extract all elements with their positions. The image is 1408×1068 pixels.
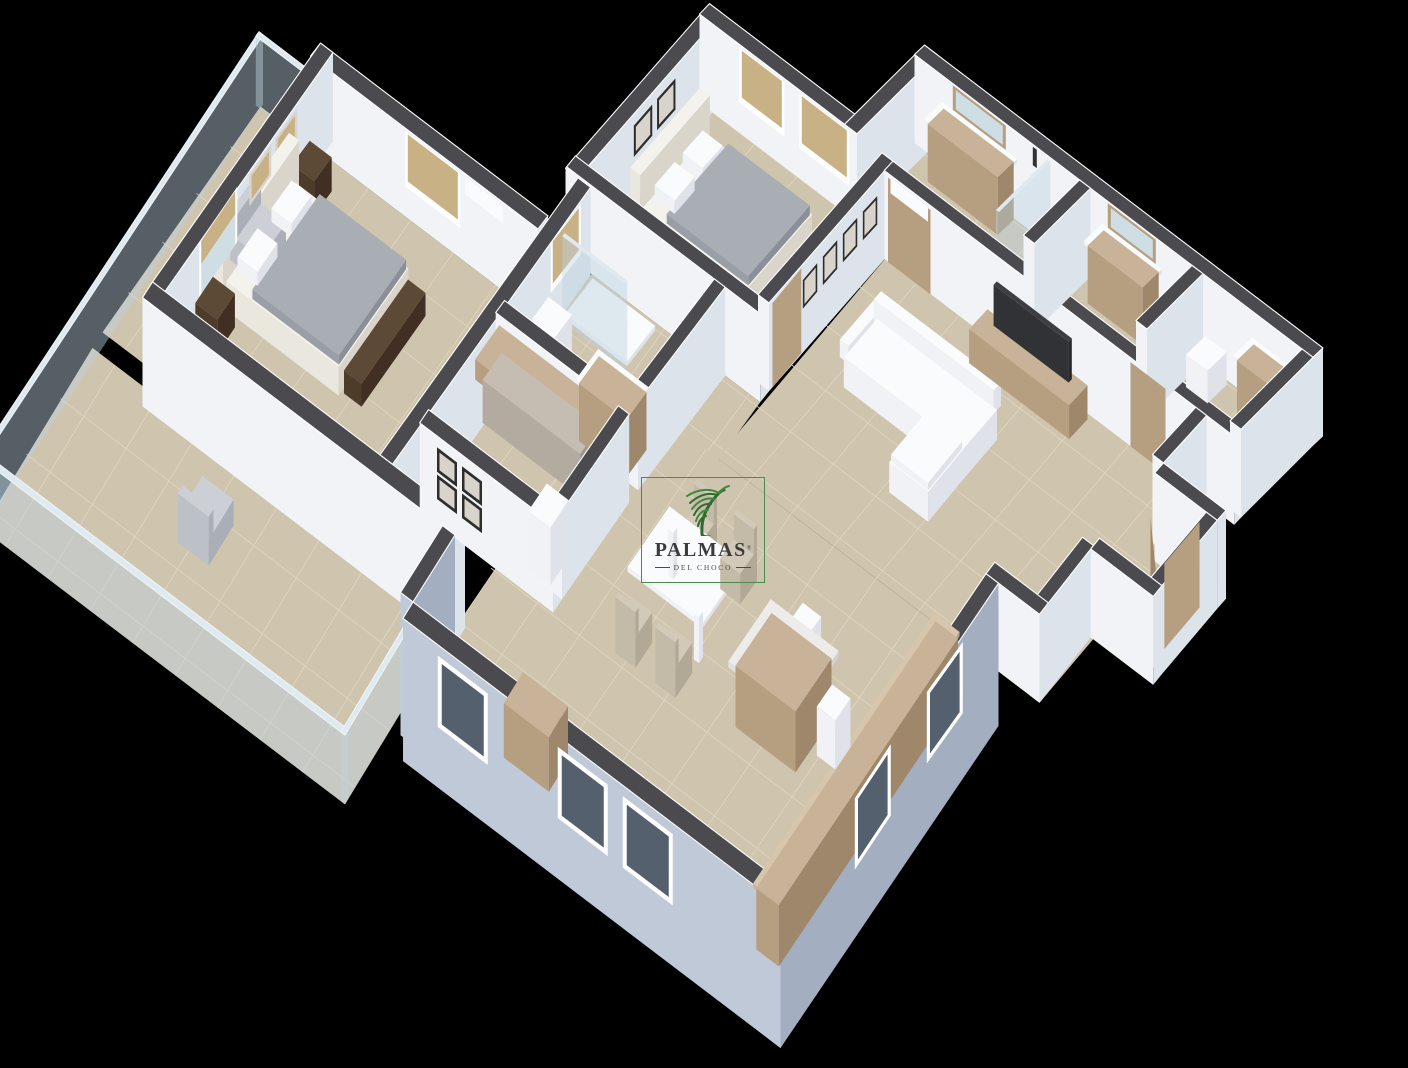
subtitle-row: DEL CHOCO [655, 563, 752, 572]
wall-kitchen-step-east [1040, 603, 1049, 703]
shower-head [1033, 147, 1037, 168]
railing-east-south [341, 732, 345, 804]
dining-chair-back-east [635, 607, 638, 637]
palm-leaf-icon [672, 480, 736, 536]
dining-chair-back-east [675, 638, 678, 668]
dining-table-leg-south [694, 613, 699, 663]
brand-text-row: PALMAS® [655, 540, 752, 560]
wall-strip-north-east [1313, 348, 1323, 446]
wall-entry-south-east [1153, 586, 1162, 685]
registered-mark: ® [747, 546, 752, 552]
subtitle-dash-right [736, 567, 751, 568]
subtitle-dash-left [655, 567, 670, 568]
television-east [1069, 338, 1072, 382]
floor-plan-scene: PALMAS® DEL CHOCO [0, 0, 1408, 1068]
wall-bedroom2-east-south [758, 295, 769, 392]
dining-table-leg [694, 607, 703, 663]
wall-strip-east-south [1230, 421, 1241, 518]
bath1-shower-glass-east [625, 281, 627, 370]
subtitle-text: DEL CHOCO [674, 563, 733, 572]
watermark-logo: PALMAS® DEL CHOCO [641, 477, 765, 583]
wall-entry-north-east [1217, 510, 1226, 608]
brand-text: PALMAS [655, 539, 747, 561]
dining-table-leg-east [699, 611, 703, 663]
